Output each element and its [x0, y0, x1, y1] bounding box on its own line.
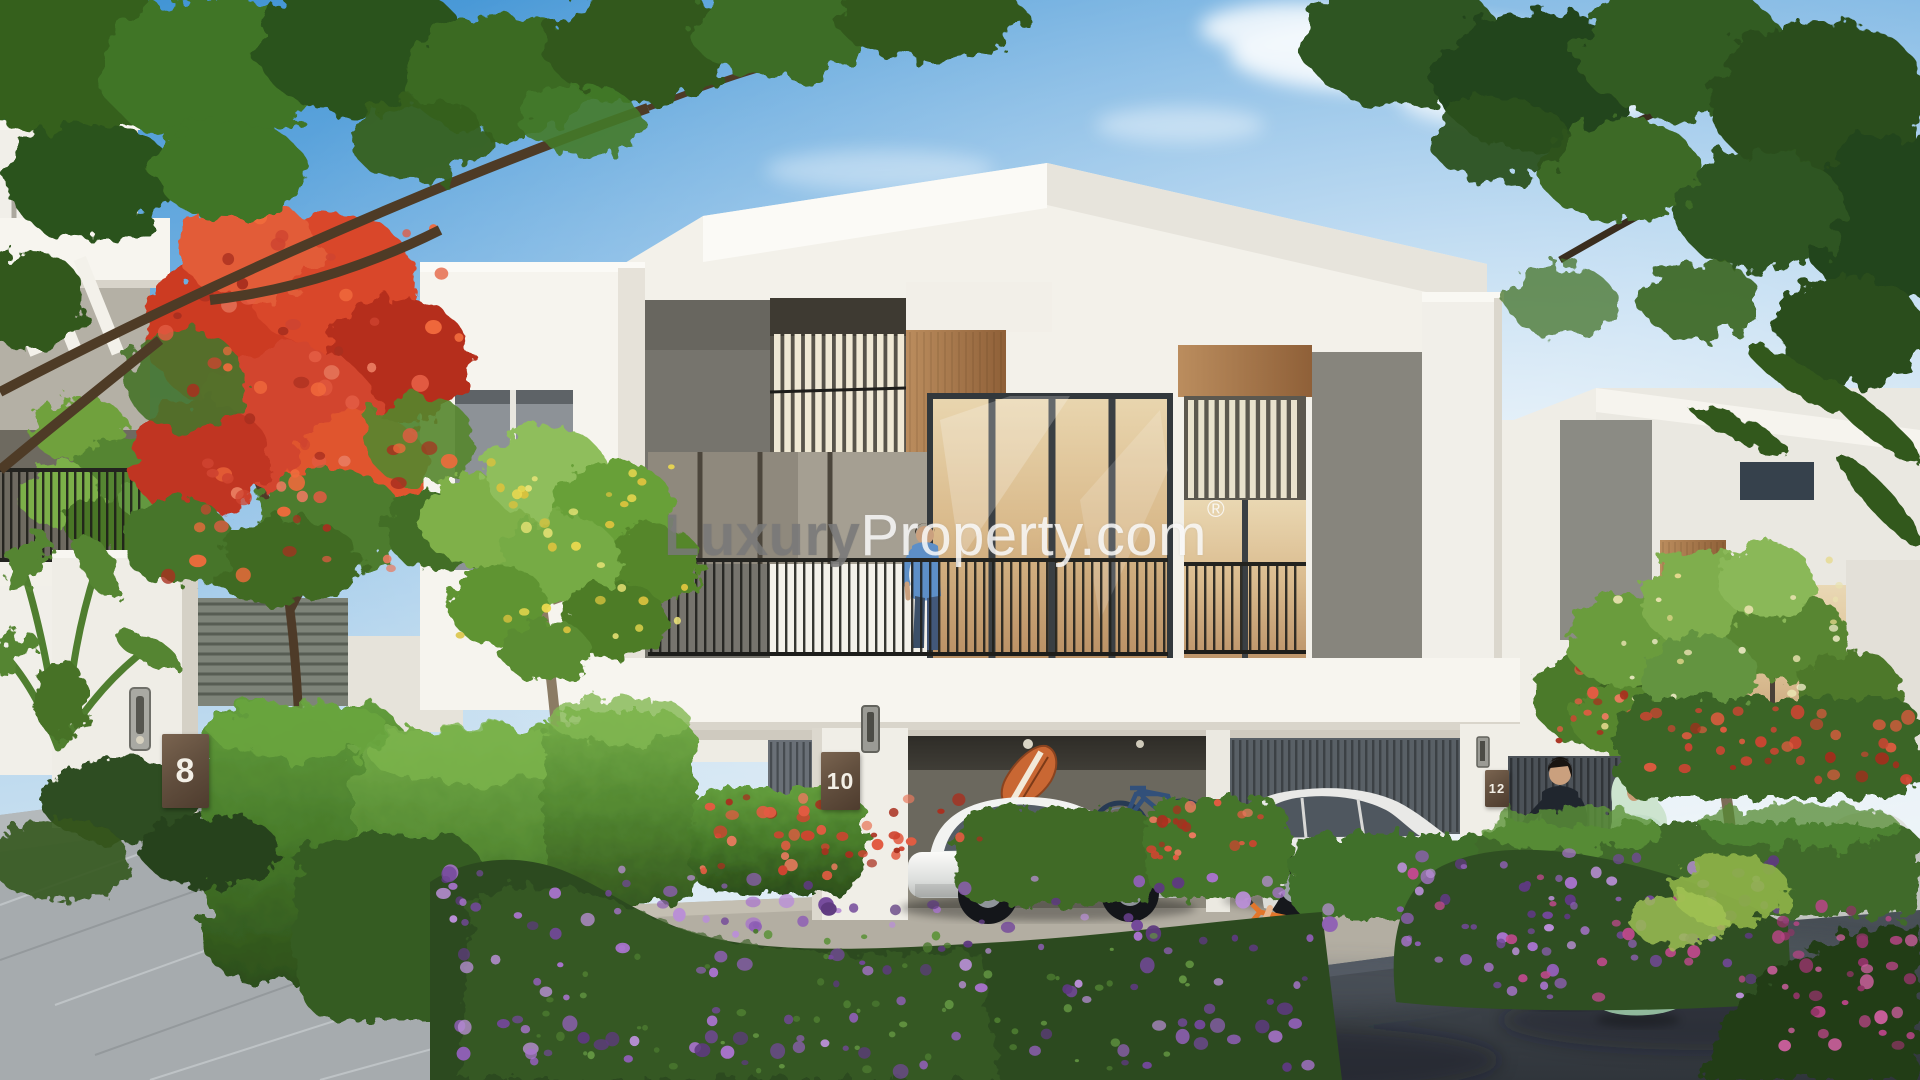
house-number-10: 10	[827, 768, 855, 795]
scene-canvas: 8 10 12 LuxuryProperty.com®	[0, 0, 1920, 1080]
house-number-plaque-8: 8	[162, 734, 209, 808]
watermark-regular-part: Property.com	[860, 503, 1207, 568]
wall-lamp-10	[862, 706, 879, 752]
house-number-plaque-10: 10	[821, 752, 860, 810]
house-number-8: 8	[176, 752, 196, 791]
wall-lamp-8	[130, 688, 150, 750]
house-number-12: 12	[1489, 781, 1505, 796]
wall-lamp-12	[1477, 737, 1489, 767]
watermark-bold-part: Luxury	[664, 503, 860, 568]
registered-trademark-icon: ®	[1207, 496, 1225, 523]
luxuryproperty-watermark: LuxuryProperty.com®	[664, 496, 1225, 570]
house-number-plaque-12: 12	[1485, 770, 1509, 807]
